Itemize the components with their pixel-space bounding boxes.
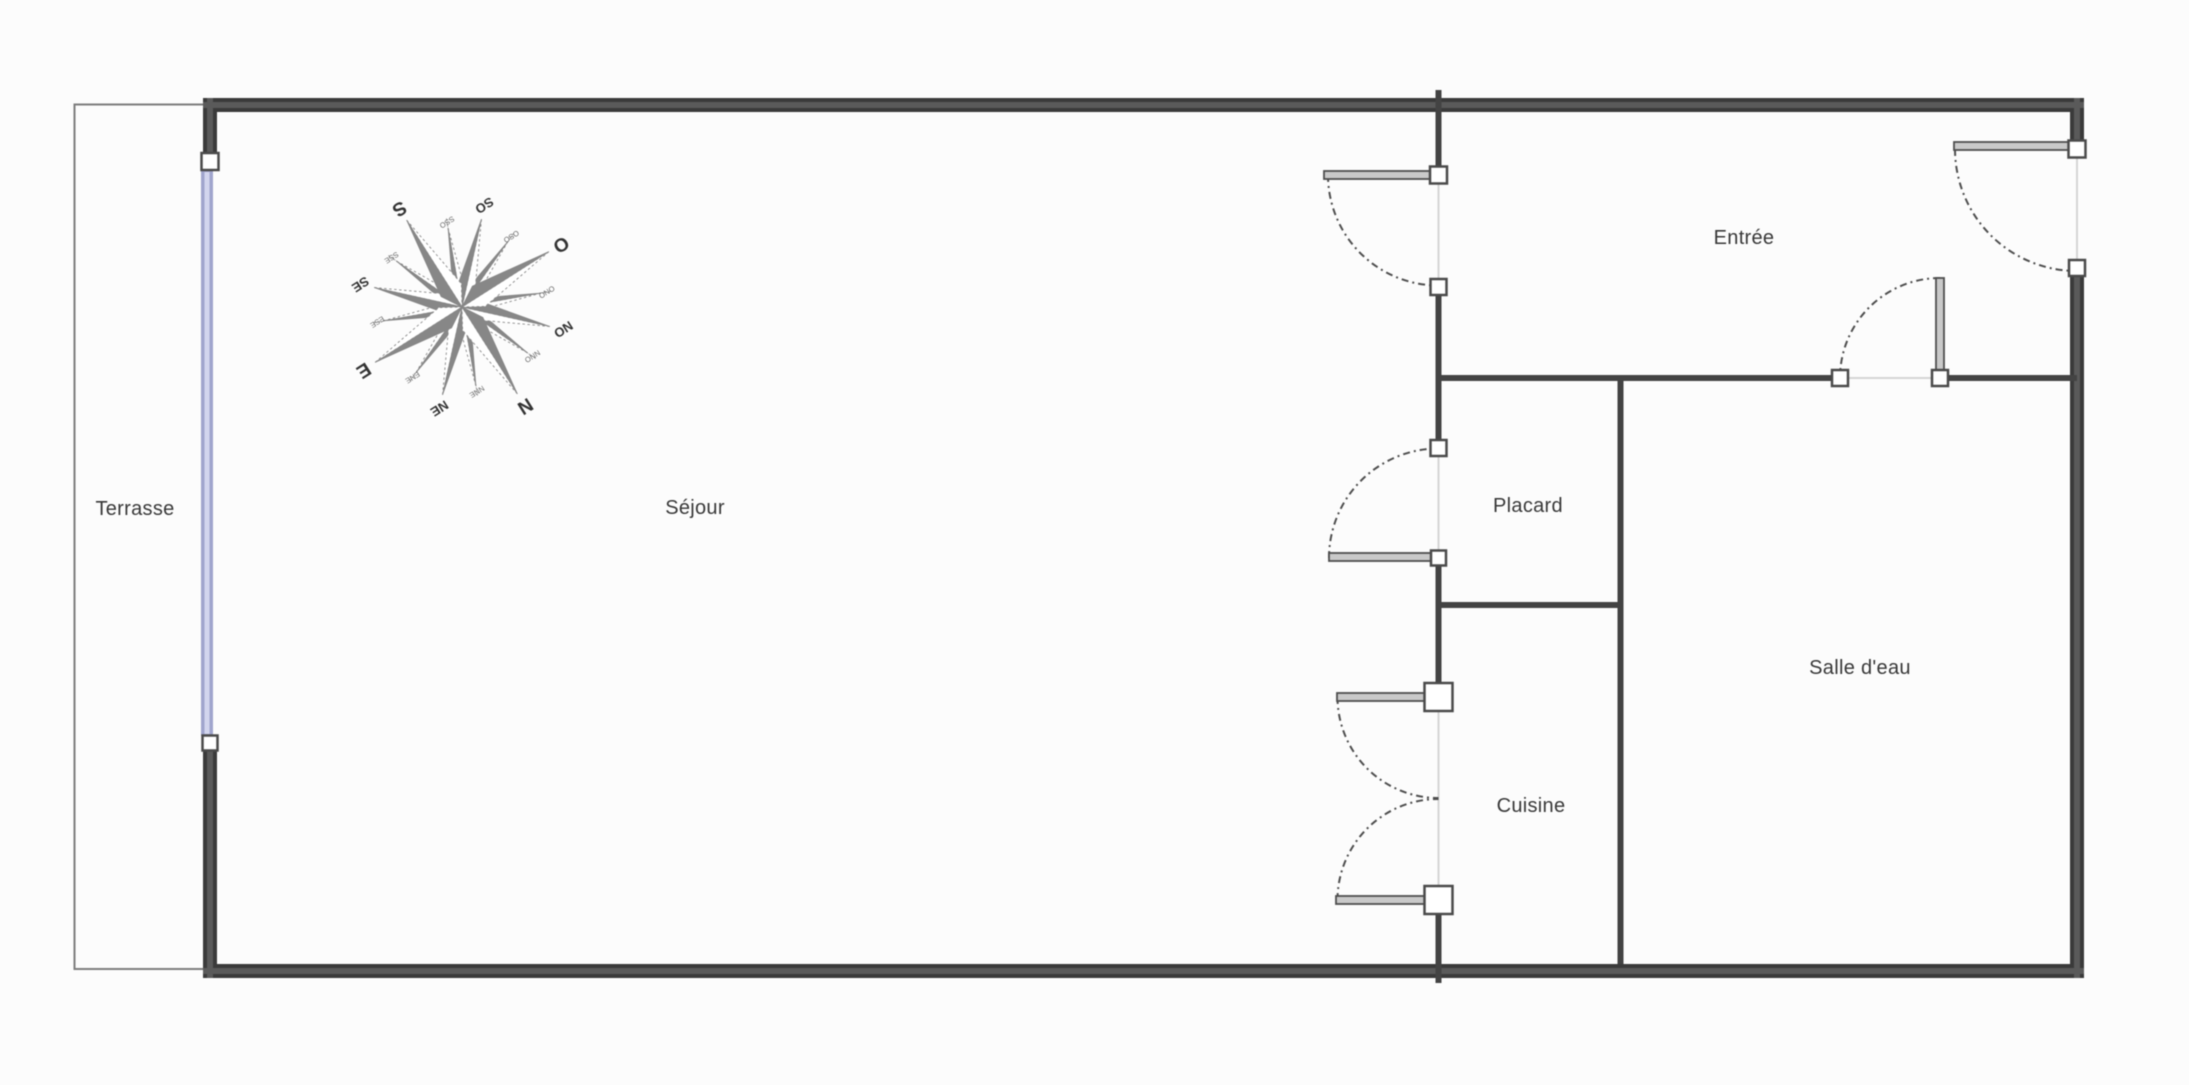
svg-text:Terrasse: Terrasse [95,498,174,520]
svg-text:Salle d'eau: Salle d'eau [1809,657,1911,679]
svg-text:Entrée: Entrée [1714,227,1775,249]
svg-text:Placard: Placard [1493,495,1563,517]
svg-text:Cuisine: Cuisine [1497,795,1566,817]
svg-text:Séjour: Séjour [665,497,725,519]
